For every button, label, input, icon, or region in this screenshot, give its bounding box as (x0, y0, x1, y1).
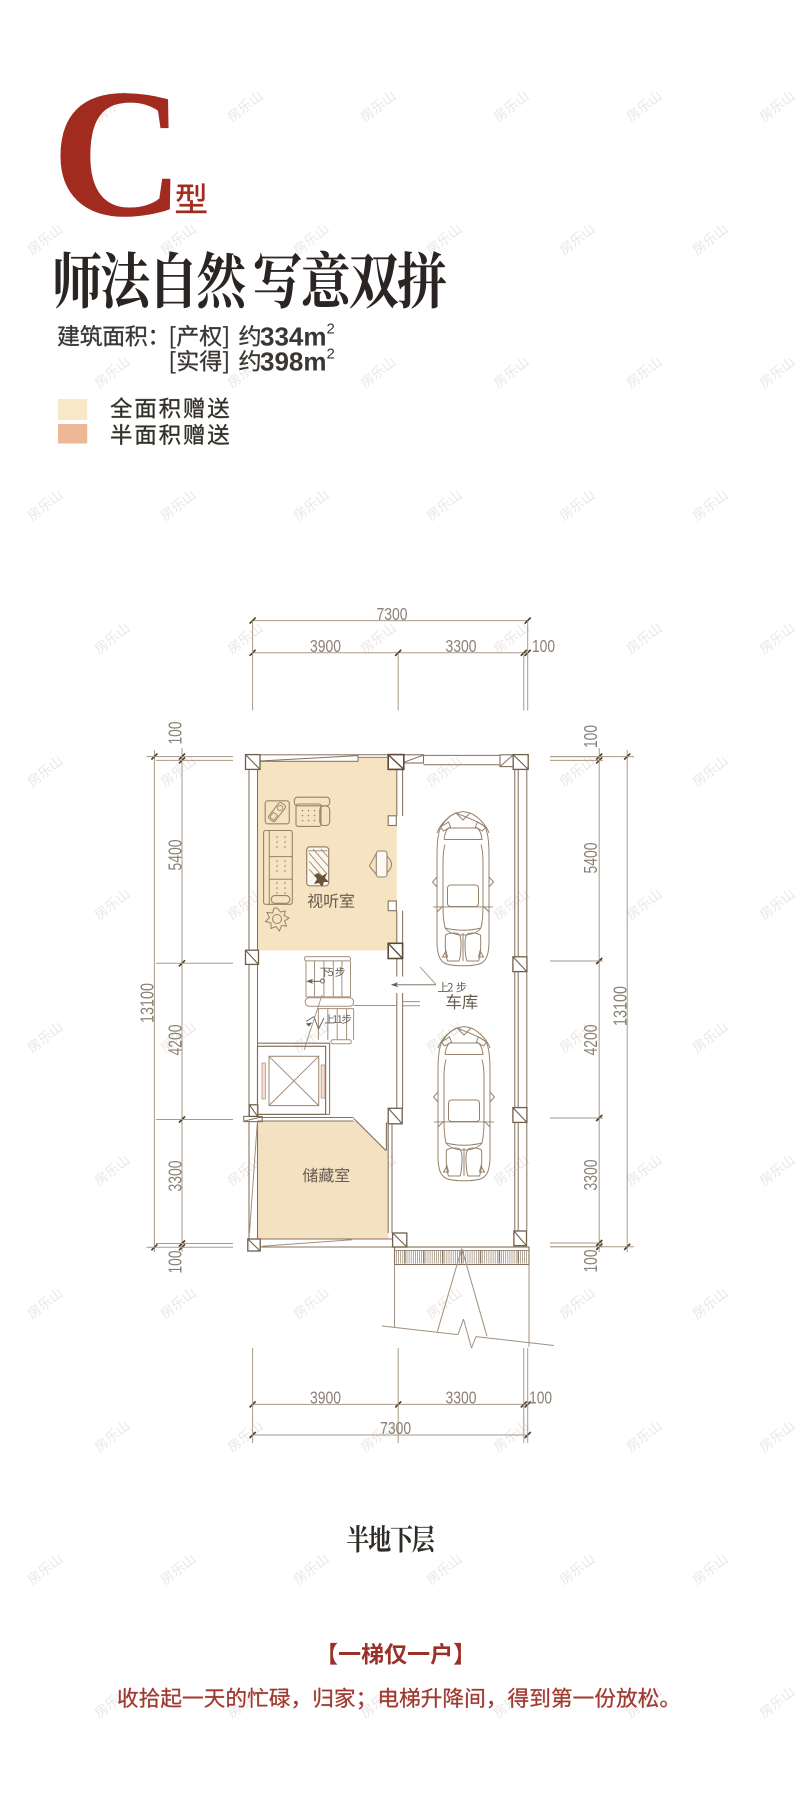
svg-text:3900: 3900 (310, 636, 341, 656)
svg-text:3900: 3900 (310, 1388, 341, 1408)
svg-text:100: 100 (166, 1251, 186, 1274)
svg-text:4200: 4200 (166, 1025, 186, 1056)
svg-text:100: 100 (581, 1250, 601, 1273)
svg-text:100: 100 (529, 1388, 552, 1408)
svg-text:2: 2 (327, 346, 335, 363)
svg-text:3300: 3300 (166, 1161, 186, 1192)
svg-text:3300: 3300 (446, 636, 477, 656)
svg-text:7300: 7300 (380, 1418, 411, 1438)
svg-text:100: 100 (532, 636, 555, 656)
svg-text:5400: 5400 (166, 840, 186, 871)
svg-text:398m: 398m (260, 347, 327, 377)
svg-text:7300: 7300 (377, 604, 408, 624)
svg-text:3300: 3300 (581, 1160, 601, 1191)
svg-text:4200: 4200 (581, 1025, 601, 1056)
svg-text:2: 2 (327, 321, 335, 338)
svg-text:3300: 3300 (446, 1388, 477, 1408)
svg-text:13100: 13100 (611, 986, 631, 1026)
svg-text:13100: 13100 (138, 983, 158, 1023)
svg-text:100: 100 (166, 722, 186, 745)
svg-text:5400: 5400 (581, 843, 601, 874)
svg-text:100: 100 (581, 725, 601, 748)
svg-text:C: C (52, 51, 185, 255)
